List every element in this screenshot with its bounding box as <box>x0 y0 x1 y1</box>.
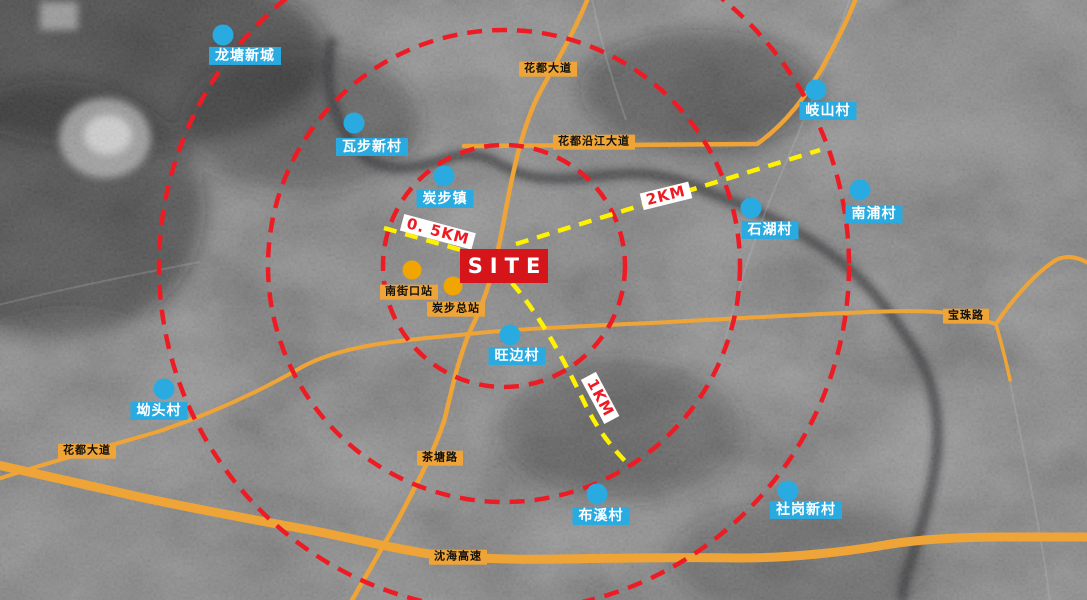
road-label-shenhai-expressway: 沈海高速 <box>429 550 487 565</box>
road-label-baozhu-road: 宝珠路 <box>943 309 989 324</box>
satellite-map-graphics <box>0 0 1087 600</box>
village-marker-dot <box>587 484 608 505</box>
village-label-buxicun: 布溪村 <box>573 507 630 525</box>
village-label-shihucun: 石湖村 <box>742 221 799 239</box>
road-label-huadu-avenue-top: 花都大道 <box>519 62 577 77</box>
road-label-huadu-avenue-left: 花都大道 <box>58 444 116 459</box>
map-canvas[interactable]: 龙塘新城 瓦步新村 炭步镇 岐山村 石湖村 南浦村 旺边村 坳头村 布溪村 社岗… <box>0 0 1087 600</box>
village-label-nanpucun: 南浦村 <box>846 205 903 223</box>
village-label-shegangxincun: 社岗新村 <box>770 501 842 519</box>
site-label: SITE <box>460 249 548 283</box>
road-label-chatang-road: 茶塘路 <box>417 451 463 466</box>
village-marker-dot <box>778 481 799 502</box>
village-label-longtangxincheng: 龙塘新城 <box>209 47 281 65</box>
village-marker-dot <box>806 80 827 101</box>
village-marker-dot <box>741 198 762 219</box>
village-label-aotoucun: 坳头村 <box>131 402 188 420</box>
village-label-tanbuzhen: 炭步镇 <box>417 190 474 208</box>
station-label-tanbu-terminal: 炭步总站 <box>427 302 485 317</box>
village-marker-dot <box>850 180 871 201</box>
village-label-wabuxincun: 瓦步新村 <box>336 138 408 156</box>
village-label-wangbiancun: 旺边村 <box>489 347 546 365</box>
village-label-qishancun: 岐山村 <box>800 102 857 120</box>
village-marker-dot <box>213 25 234 46</box>
station-marker-dot <box>403 261 422 280</box>
road-label-huadu-yanjiang: 花都沿江大道 <box>553 135 635 150</box>
village-marker-dot <box>344 113 365 134</box>
village-marker-dot <box>154 379 175 400</box>
station-label-nanjiekou: 南街口站 <box>380 285 438 300</box>
village-marker-dot <box>434 166 455 187</box>
village-marker-dot <box>500 325 521 346</box>
